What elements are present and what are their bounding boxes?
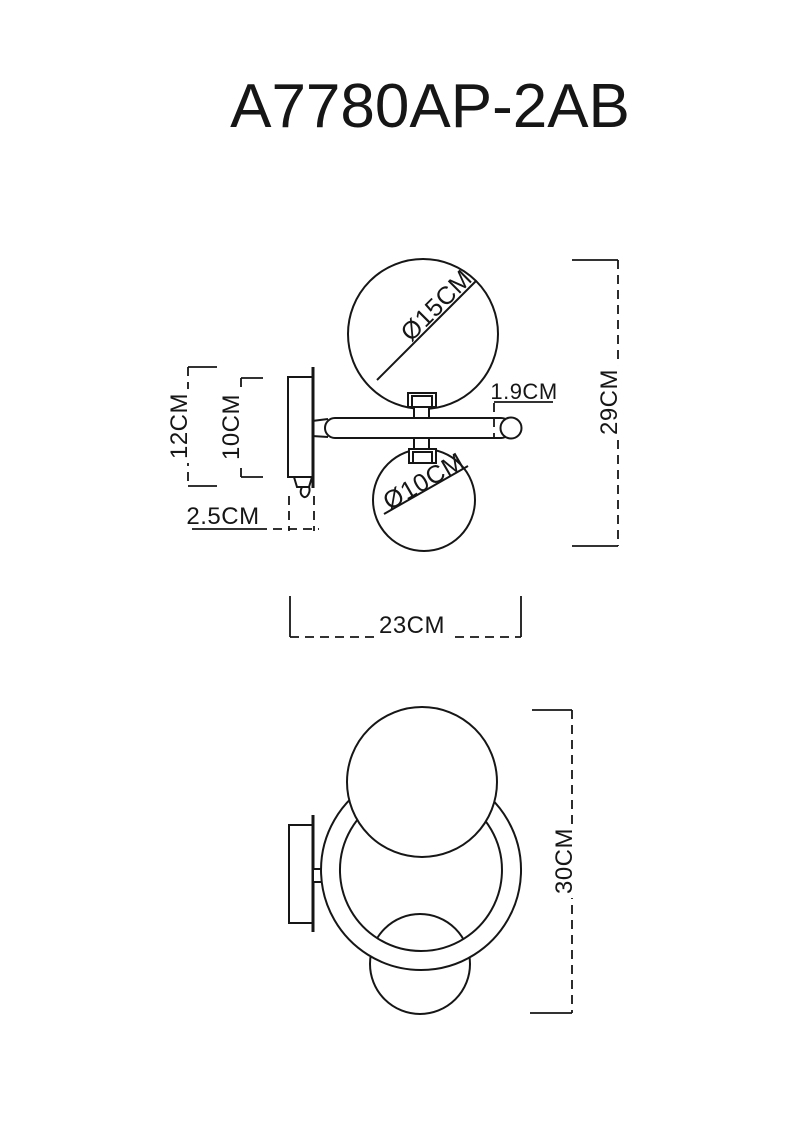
front-wall-plate (289, 825, 313, 923)
arm-diameter-label: 1.9CM (490, 381, 557, 403)
front-view (289, 707, 521, 1014)
arm-rod (325, 418, 511, 438)
switch-bracket (294, 477, 312, 487)
product-model-title: A7780AP-2AB (230, 76, 630, 138)
side-wall-plate (288, 377, 313, 477)
backplate-height-label: 12CM (167, 389, 193, 463)
technical-drawing-canvas (0, 0, 794, 1123)
overall-depth-label: 23CM (375, 613, 449, 639)
overall-height-label-front: 30CM (552, 824, 578, 898)
side-view-dimensions (188, 260, 618, 637)
drawing-sheet: A7780AP-2AB Ø15CM Ø10CM 1.9CM 29CM 12CM … (0, 0, 794, 1123)
arm-end-ball (501, 418, 522, 439)
switch-toggle (301, 487, 310, 497)
mount-body-height-label: 10CM (219, 390, 245, 464)
upper-globe-collar-inner (412, 396, 432, 407)
overall-height-label-side: 29CM (597, 365, 623, 439)
front-large-globe (347, 707, 497, 857)
mount-depth-label: 2.5CM (186, 505, 259, 529)
